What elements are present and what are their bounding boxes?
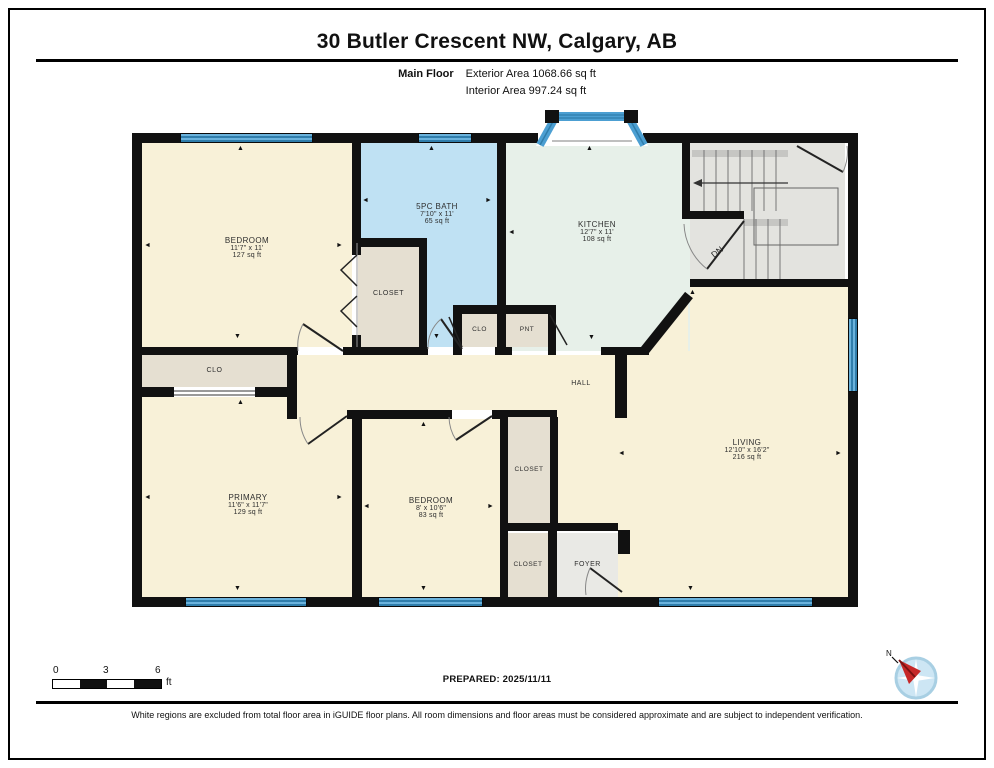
wall <box>287 387 297 419</box>
window <box>180 133 313 143</box>
hall-corridor <box>615 418 627 530</box>
arrow-left-icon: ◄ <box>618 450 625 457</box>
wall <box>352 238 427 247</box>
wall <box>343 347 428 355</box>
arrow-down-icon: ▼ <box>687 585 694 592</box>
room-label-bedroom-1: BEDROOM 11'7" x 11' 127 sq ft <box>197 236 297 259</box>
room-area: 216 sq ft <box>697 454 797 461</box>
disclaimer-text: White regions are excluded from total fl… <box>0 710 994 720</box>
window <box>378 597 483 607</box>
wall <box>132 387 174 397</box>
arrow-up-icon: ▲ <box>586 145 593 152</box>
room-dims: 11'6" x 11'7" <box>198 502 298 509</box>
arrow-left-icon: ◄ <box>363 503 370 510</box>
sliding-door-track <box>174 394 255 396</box>
room-label-hall: HALL <box>531 380 631 387</box>
arrow-left-icon: ◄ <box>144 494 151 501</box>
wall <box>132 133 142 607</box>
wall <box>550 417 558 523</box>
arrow-down-icon: ▼ <box>588 334 595 341</box>
wall <box>492 410 500 419</box>
wall <box>347 410 452 419</box>
wall <box>500 410 557 417</box>
room-living <box>627 351 690 597</box>
wall <box>690 279 848 287</box>
room-label-clo-small: CLO <box>462 326 497 333</box>
room-name: PRIMARY <box>198 493 298 502</box>
room-name: BEDROOM <box>197 236 297 245</box>
room-name: 5PC BATH <box>387 202 487 211</box>
wall <box>352 335 361 347</box>
arrow-up-icon: ▲ <box>237 145 244 152</box>
room-dims: 11'7" x 11' <box>197 245 297 252</box>
room-area: 108 sq ft <box>547 236 647 243</box>
wall <box>506 305 550 314</box>
arrow-right-icon: ► <box>336 494 343 501</box>
wall <box>548 305 556 355</box>
window <box>185 597 307 607</box>
arrow-left-icon: ◄ <box>362 197 369 204</box>
room-name: LIVING <box>697 438 797 447</box>
wall <box>352 410 362 597</box>
prepared-date: PREPARED: 2025/11/11 <box>0 674 994 685</box>
room-name: KITCHEN <box>547 220 647 229</box>
wall <box>495 347 512 355</box>
wall <box>500 410 508 597</box>
room-label-closet: CLOSET <box>358 290 419 297</box>
wall <box>497 143 506 355</box>
room-label-primary: PRIMARY 11'6" x 11'7" 129 sq ft <box>198 493 298 516</box>
room-area: 65 sq ft <box>387 218 487 225</box>
arrow-down-icon: ▼ <box>234 333 241 340</box>
page-title: 30 Butler Crescent NW, Calgary, AB <box>0 30 994 54</box>
wall <box>453 305 510 314</box>
room-name: BEDROOM <box>381 496 481 505</box>
room-area: 129 sq ft <box>198 509 298 516</box>
sliding-door-track <box>174 390 255 392</box>
floor-label: Main Floor <box>398 66 454 83</box>
exterior-area: Exterior Area 1068.66 sq ft <box>466 66 596 83</box>
room-label-clo: CLO <box>142 367 287 374</box>
room-label-closet-bottom: CLOSET <box>508 561 548 568</box>
arrow-down-icon: ▼ <box>433 333 440 340</box>
room-label-closet-mid: CLOSET <box>508 466 550 473</box>
arrow-right-icon: ► <box>336 242 343 249</box>
wall <box>601 347 649 355</box>
wall <box>419 247 427 347</box>
bay-window-opening <box>538 133 643 143</box>
wall <box>618 530 630 554</box>
wall <box>682 143 690 219</box>
room-label-kitchen: KITCHEN 12'7" x 11' 108 sq ft <box>547 220 647 243</box>
hall-corridor <box>557 410 615 523</box>
wall <box>132 347 298 355</box>
arrow-right-icon: ► <box>487 503 494 510</box>
room-label-bath: 5PC BATH 7'10" x 11' 65 sq ft <box>387 202 487 225</box>
arrow-up-icon: ▲ <box>420 421 427 428</box>
room-area: 83 sq ft <box>381 512 481 519</box>
room-label-living: LIVING 12'10" x 16'2" 216 sq ft <box>697 438 797 461</box>
room-label-bedroom-2: BEDROOM 8' x 10'6" 83 sq ft <box>381 496 481 519</box>
arrow-left-icon: ◄ <box>508 229 515 236</box>
room-dims: 12'7" x 11' <box>547 229 647 236</box>
window <box>848 318 858 392</box>
wall <box>548 531 557 597</box>
arrow-up-icon: ▲ <box>689 289 696 296</box>
arrow-up-icon: ▲ <box>237 399 244 406</box>
arrow-down-icon: ▼ <box>420 585 427 592</box>
arrow-up-icon: ▲ <box>428 145 435 152</box>
room-area: 127 sq ft <box>197 252 297 259</box>
wall <box>352 243 361 255</box>
divider <box>36 59 958 62</box>
floor-info: Main Floor Exterior Area 1068.66 sq ft I… <box>0 66 994 100</box>
arrow-left-icon: ◄ <box>144 242 151 249</box>
divider <box>36 701 958 704</box>
room-dims: 12'10" x 16'2" <box>697 447 797 454</box>
room-label-foyer: FOYER <box>557 561 618 568</box>
wall <box>352 143 361 248</box>
arrow-down-icon: ▼ <box>234 585 241 592</box>
room-dims: 7'10" x 11' <box>387 211 487 218</box>
foyer-opening <box>618 554 627 597</box>
window <box>418 133 472 143</box>
arrow-right-icon: ► <box>835 450 842 457</box>
window <box>658 597 813 607</box>
wall <box>682 211 744 219</box>
arrow-right-icon: ► <box>485 197 492 204</box>
room-label-pantry: PNT <box>506 326 548 333</box>
wall <box>548 523 618 531</box>
room-dims: 8' x 10'6" <box>381 505 481 512</box>
area-summary: Exterior Area 1068.66 sq ft Interior Are… <box>466 66 596 100</box>
interior-area: Interior Area 997.24 sq ft <box>466 83 596 100</box>
